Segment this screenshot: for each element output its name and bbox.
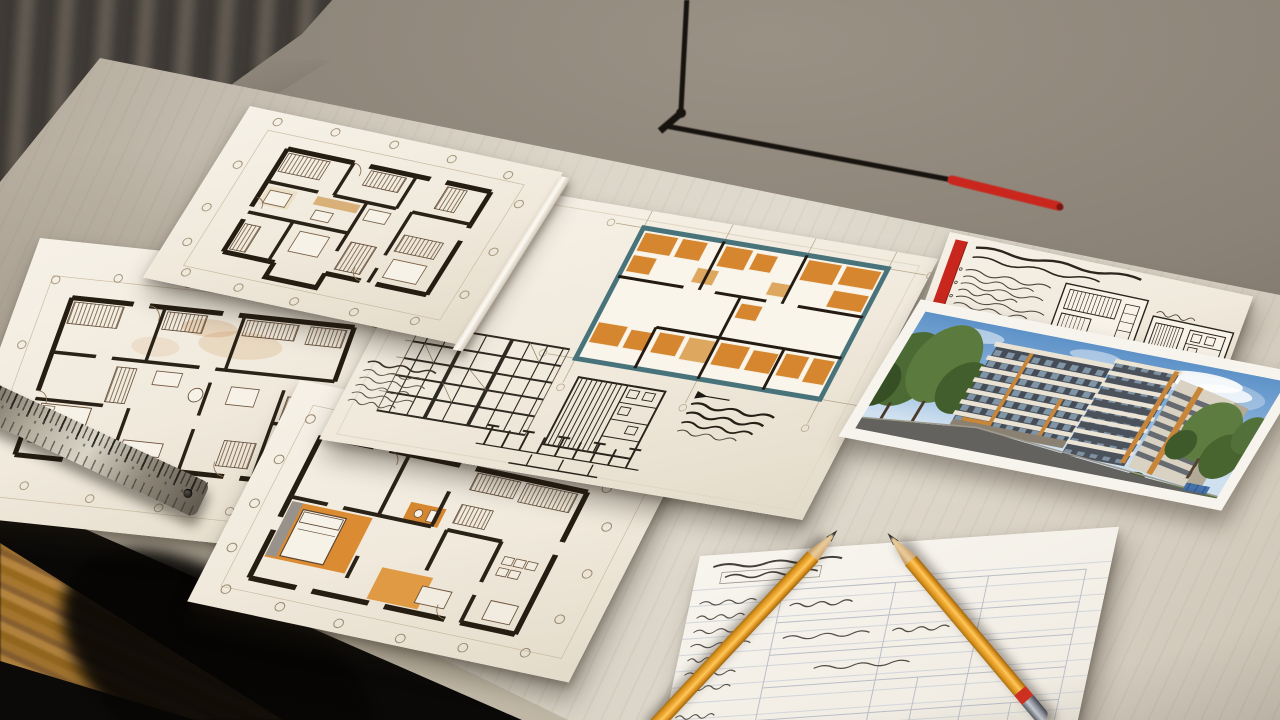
notes-block — [347, 360, 437, 413]
closets — [229, 153, 475, 288]
note-sheet — [650, 527, 1119, 720]
note-form — [650, 527, 1119, 720]
title-block — [676, 391, 781, 447]
lamp-arm-red-tip — [952, 180, 1058, 206]
elevation-grid-2 — [544, 377, 666, 459]
desk-scene — [0, 0, 1280, 720]
